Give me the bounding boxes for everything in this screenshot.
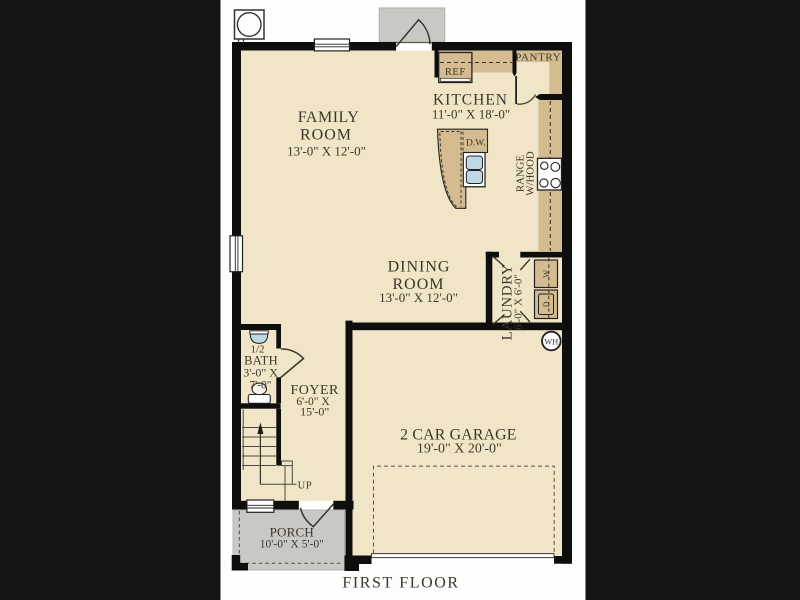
svg-text:W/HOOD: W/HOOD bbox=[525, 151, 537, 196]
svg-text:WH: WH bbox=[544, 337, 558, 346]
svg-text:FAMILY: FAMILY bbox=[298, 109, 360, 126]
svg-text:7'-0": 7'-0" bbox=[249, 380, 271, 392]
svg-text:13'-0" X 12'-0": 13'-0" X 12'-0" bbox=[379, 290, 458, 305]
svg-text:UP: UP bbox=[298, 481, 312, 492]
svg-text:D: D bbox=[542, 301, 551, 307]
svg-text:3'-0" X: 3'-0" X bbox=[243, 366, 278, 380]
svg-text:11'-0" X 18'-0": 11'-0" X 18'-0" bbox=[432, 107, 510, 122]
svg-text:19'-0" X 20'-0": 19'-0" X 20'-0" bbox=[417, 442, 502, 457]
svg-text:FIRST FLOOR: FIRST FLOOR bbox=[342, 575, 459, 592]
svg-text:PANTRY: PANTRY bbox=[515, 52, 561, 64]
svg-text:W: W bbox=[541, 270, 551, 278]
svg-text:ROOM: ROOM bbox=[300, 127, 352, 144]
svg-text:13'-0" X 12'-0": 13'-0" X 12'-0" bbox=[287, 144, 366, 159]
svg-text:6'-0" X 6'-0": 6'-0" X 6'-0" bbox=[513, 274, 525, 330]
svg-text:DINING: DINING bbox=[388, 259, 451, 276]
svg-text:PORCH: PORCH bbox=[270, 525, 314, 540]
svg-text:REF: REF bbox=[445, 67, 466, 78]
svg-text:10'-0" X 5'-0": 10'-0" X 5'-0" bbox=[260, 539, 324, 551]
svg-text:15'-0": 15'-0" bbox=[300, 405, 329, 419]
svg-text:D.W.: D.W. bbox=[466, 139, 486, 149]
